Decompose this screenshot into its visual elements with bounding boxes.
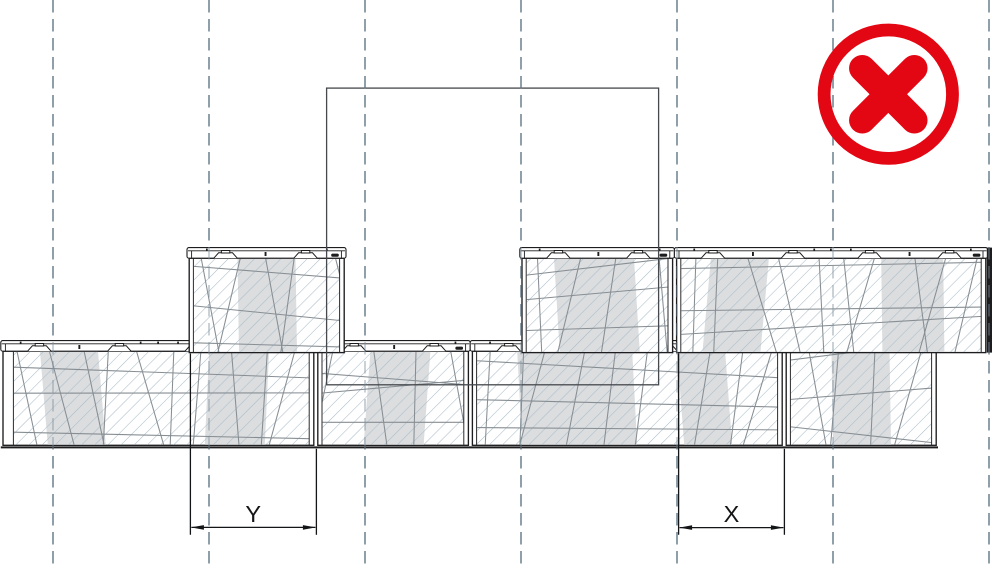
svg-text:Y: Y bbox=[245, 501, 261, 527]
svg-text:X: X bbox=[724, 501, 740, 527]
